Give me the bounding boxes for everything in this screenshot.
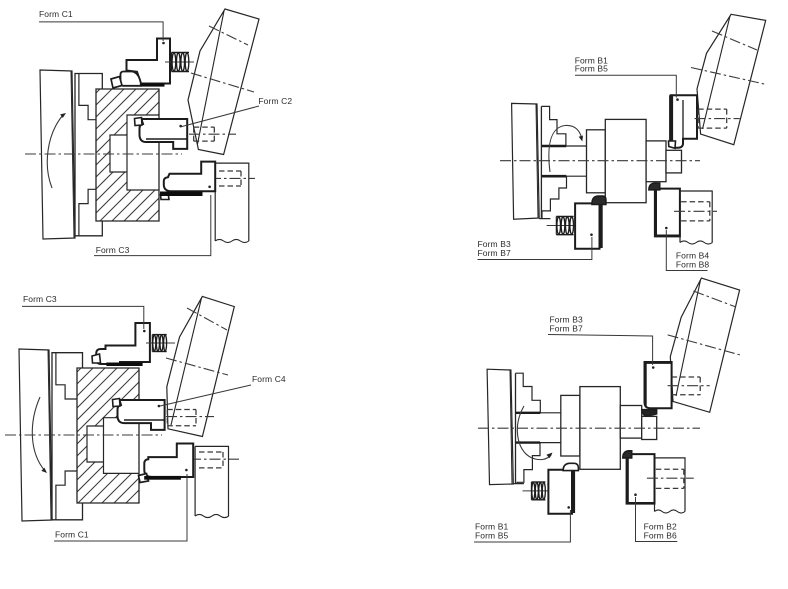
svg-text:Form C1: Form C1 (39, 9, 73, 19)
svg-text:Form B5: Form B5 (575, 63, 608, 73)
svg-text:Form B8: Form B8 (676, 260, 709, 270)
svg-text:Form C3: Form C3 (23, 294, 57, 304)
svg-text:Form C3: Form C3 (96, 245, 130, 255)
svg-text:Form B7: Form B7 (550, 324, 583, 334)
svg-text:Form B6: Form B6 (644, 531, 677, 541)
svg-text:Form C1: Form C1 (55, 530, 89, 540)
svg-text:Form B5: Form B5 (475, 531, 508, 541)
svg-text:Form B7: Form B7 (478, 248, 511, 258)
svg-text:Form C2: Form C2 (258, 96, 292, 106)
svg-text:Form C4: Form C4 (252, 374, 286, 384)
